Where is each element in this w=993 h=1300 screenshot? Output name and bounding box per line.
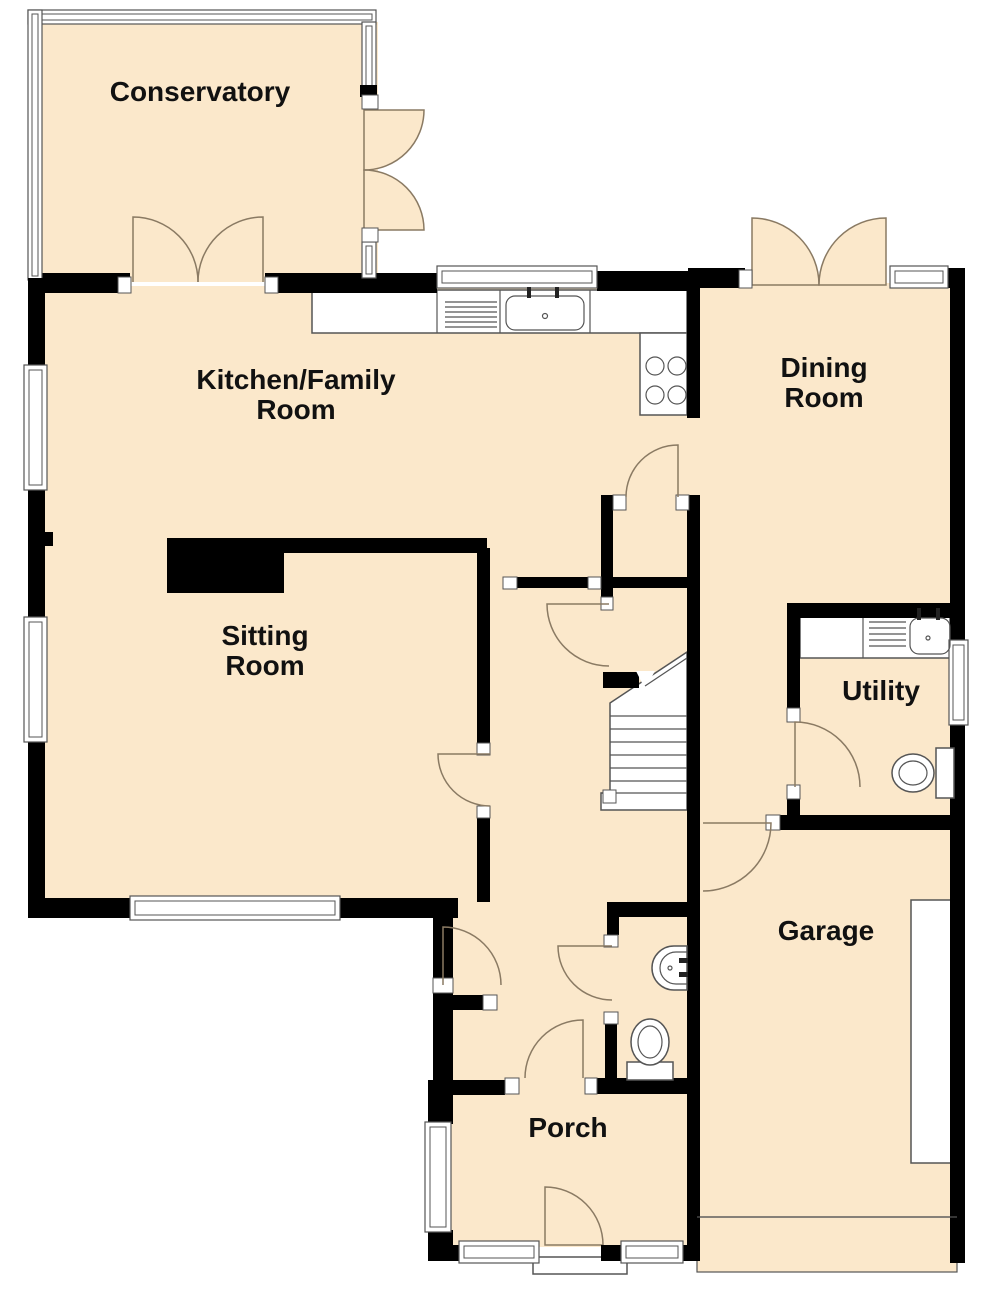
wall-segment	[607, 902, 619, 935]
label-porch: Porch	[528, 1112, 607, 1143]
dining-french-door-left	[752, 218, 819, 285]
wall-segment	[687, 495, 700, 1247]
label-utility: Utility	[842, 675, 920, 706]
garage-door	[697, 1217, 957, 1272]
window-porch-bottom-right	[621, 1241, 683, 1263]
window-left-sitting	[24, 617, 47, 742]
wall-segment	[517, 577, 588, 588]
window-dining-top	[890, 266, 948, 288]
wall-segment	[780, 815, 957, 830]
window-sitting-bottom	[130, 896, 340, 920]
conservatory-side-door-lower	[364, 170, 424, 230]
wall-segment	[477, 548, 490, 745]
chimney-breast	[167, 538, 284, 593]
label-garage: Garage	[778, 915, 875, 946]
label-sitting-line2: Room	[225, 650, 304, 681]
wall-segment	[597, 271, 700, 291]
wash-basin-icon	[652, 946, 688, 990]
tap-icon	[555, 287, 559, 298]
floor-plan-drawing: Conservatory Kitchen/Family Room Dining …	[0, 0, 993, 1300]
wall-segment	[477, 818, 490, 902]
label-sitting-line1: Sitting	[221, 620, 308, 651]
wall-segment	[613, 577, 700, 588]
wall-segment	[428, 1245, 461, 1261]
label-dining-line1: Dining	[780, 352, 867, 383]
glass-wall-right-lower	[362, 242, 376, 278]
glass-wall-left	[28, 10, 42, 280]
wall-segment	[605, 1024, 617, 1078]
conservatory-side-door-upper	[364, 110, 424, 170]
stairs-break-stub	[603, 672, 639, 688]
dining-french-door-right	[819, 218, 886, 285]
label-kitchen-line1: Kitchen/Family	[196, 364, 396, 395]
tap-icon	[679, 972, 688, 977]
wall-segment	[601, 1245, 623, 1261]
label-kitchen-line2: Room	[256, 394, 335, 425]
wall-segment	[28, 278, 45, 293]
wall-segment	[284, 538, 487, 553]
label-conservatory: Conservatory	[110, 76, 291, 107]
floor-rear-hall	[687, 418, 802, 835]
window-porch-left	[425, 1122, 451, 1232]
wall-segment	[787, 603, 800, 708]
window-porch-bottom-left	[459, 1241, 539, 1263]
label-dining-line2: Room	[784, 382, 863, 413]
wall-segment	[687, 285, 700, 418]
wall-segment	[265, 273, 437, 293]
tap-icon	[679, 958, 688, 963]
wall-segment	[433, 1080, 505, 1095]
window-left-kitchen	[24, 365, 47, 490]
tap-icon	[527, 287, 531, 298]
wall-segment	[688, 268, 745, 288]
glass-wall-top	[28, 10, 376, 24]
tap-icon	[917, 608, 921, 620]
floor-plan-page: Conservatory Kitchen/Family Room Dining …	[0, 0, 993, 1300]
wall-segment	[601, 495, 613, 577]
wall-segment	[601, 577, 613, 597]
window-utility-right	[949, 640, 968, 725]
tap-icon	[936, 608, 940, 620]
wall-nub	[45, 532, 53, 546]
wall-segment	[28, 898, 140, 918]
wall-segment	[433, 993, 453, 1085]
glass-wall-right-upper	[362, 22, 376, 95]
wall-segment	[681, 1245, 700, 1261]
window-kitchen-top	[437, 266, 597, 288]
floor-conservatory	[40, 22, 378, 282]
